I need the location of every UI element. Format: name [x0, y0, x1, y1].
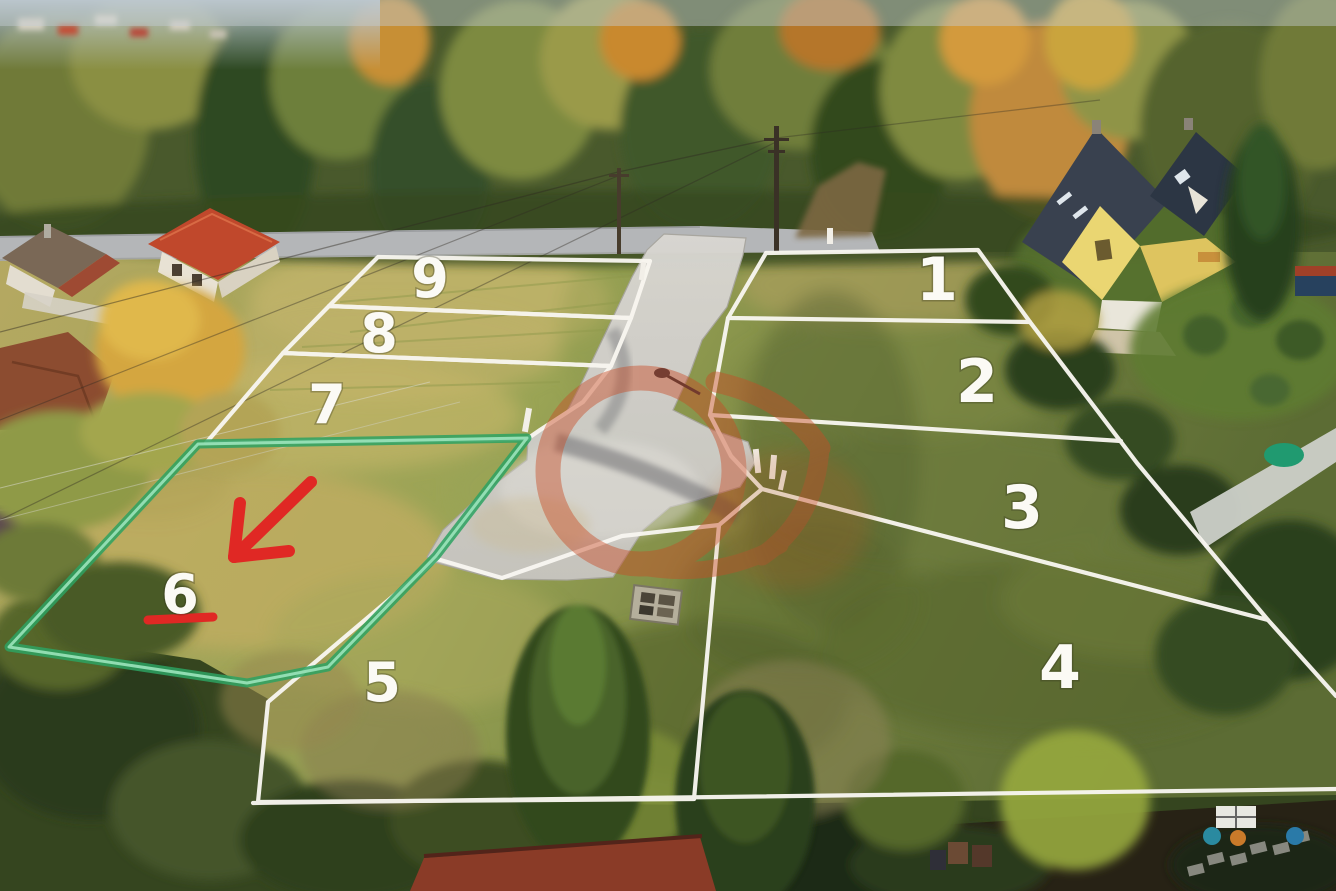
plot-number-7: 7: [308, 373, 346, 436]
old-well: [630, 585, 682, 625]
road-sign: [827, 228, 833, 244]
aerial-photo: 1 2 3 4 5 6 7 8 9: [0, 0, 1336, 891]
waste-bin: [972, 845, 992, 867]
plot-number-3: 3: [1001, 473, 1043, 543]
plot-number-4: 4: [1039, 633, 1081, 703]
plot-number-1: 1: [916, 245, 958, 315]
aerial-photo-canvas: 1 2 3 4 5 6 7 8 9: [0, 0, 1336, 891]
waste-bin: [930, 850, 946, 870]
plot-number-6: 6: [161, 563, 199, 626]
plot-number-2: 2: [956, 347, 998, 417]
plot-number-8: 8: [360, 302, 398, 365]
plot-number-5: 5: [363, 651, 401, 714]
green-tank: [1264, 443, 1304, 467]
waste-bin: [948, 842, 968, 864]
plot-number-9: 9: [411, 247, 449, 310]
